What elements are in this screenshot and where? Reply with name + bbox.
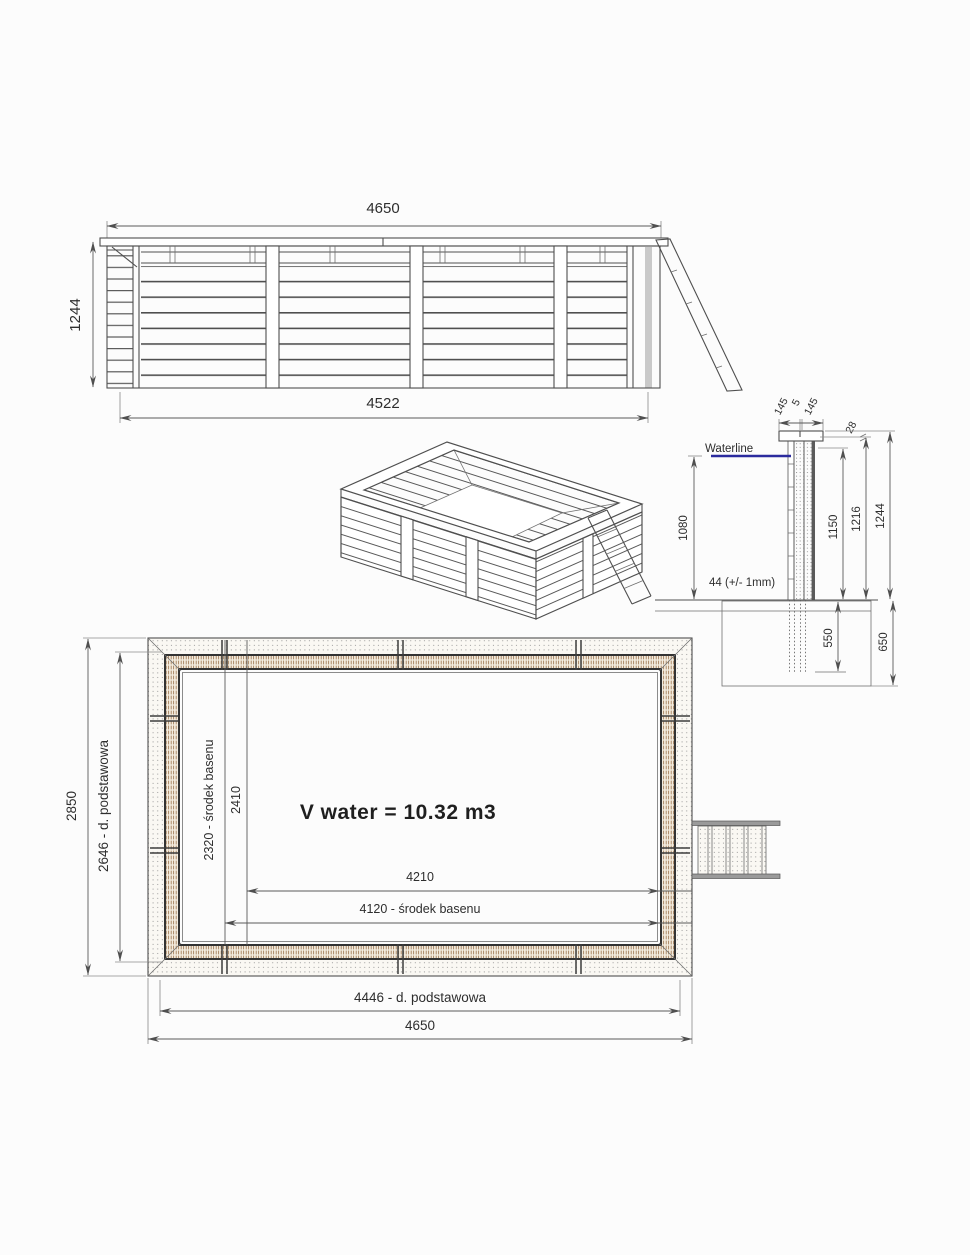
- waterline-label: Waterline: [705, 443, 753, 455]
- elevation-dim-height-label: 1244: [67, 298, 84, 331]
- section-dim-1216-label: 1216: [851, 506, 863, 532]
- water-volume-label: V water = 10.32 m3: [300, 801, 496, 824]
- plan-dim-center-length-label: 4120 - środek basenu: [360, 902, 481, 916]
- pool-technical-drawing: 4650 1244: [0, 0, 970, 1255]
- section-dim-1244-label: 1244: [875, 503, 887, 529]
- plan-dim-inner-width-label: 2410: [229, 786, 243, 814]
- section-dim-650-label: 650: [878, 632, 890, 651]
- plank-thickness-note: 44 (+/- 1mm): [709, 577, 775, 589]
- plan-dim-base-length-label: 4446 - d. podstawowa: [354, 990, 487, 1005]
- plan-dim-center-width-label: 2320 - środek basenu: [202, 739, 216, 860]
- drawing-page: 4650 1244: [0, 0, 970, 1255]
- plan-dim-outer-length-label: 4650: [405, 1018, 435, 1033]
- plan-dim-inner-length-label: 4210: [406, 870, 434, 884]
- elevation-dim-bottom-label: 4522: [366, 395, 399, 412]
- section-dim-1150-label: 1150: [828, 515, 840, 540]
- elevation-dim-top-label: 4650: [366, 200, 399, 217]
- paper-background: [0, 0, 970, 1255]
- section-dim-550-label: 550: [823, 628, 835, 647]
- section-dim-depth-label: 1080: [678, 515, 690, 541]
- plan-dim-outer-width-label: 2850: [64, 791, 79, 821]
- plan-dim-base-width-label: 2646 - d. podstawowa: [96, 739, 111, 872]
